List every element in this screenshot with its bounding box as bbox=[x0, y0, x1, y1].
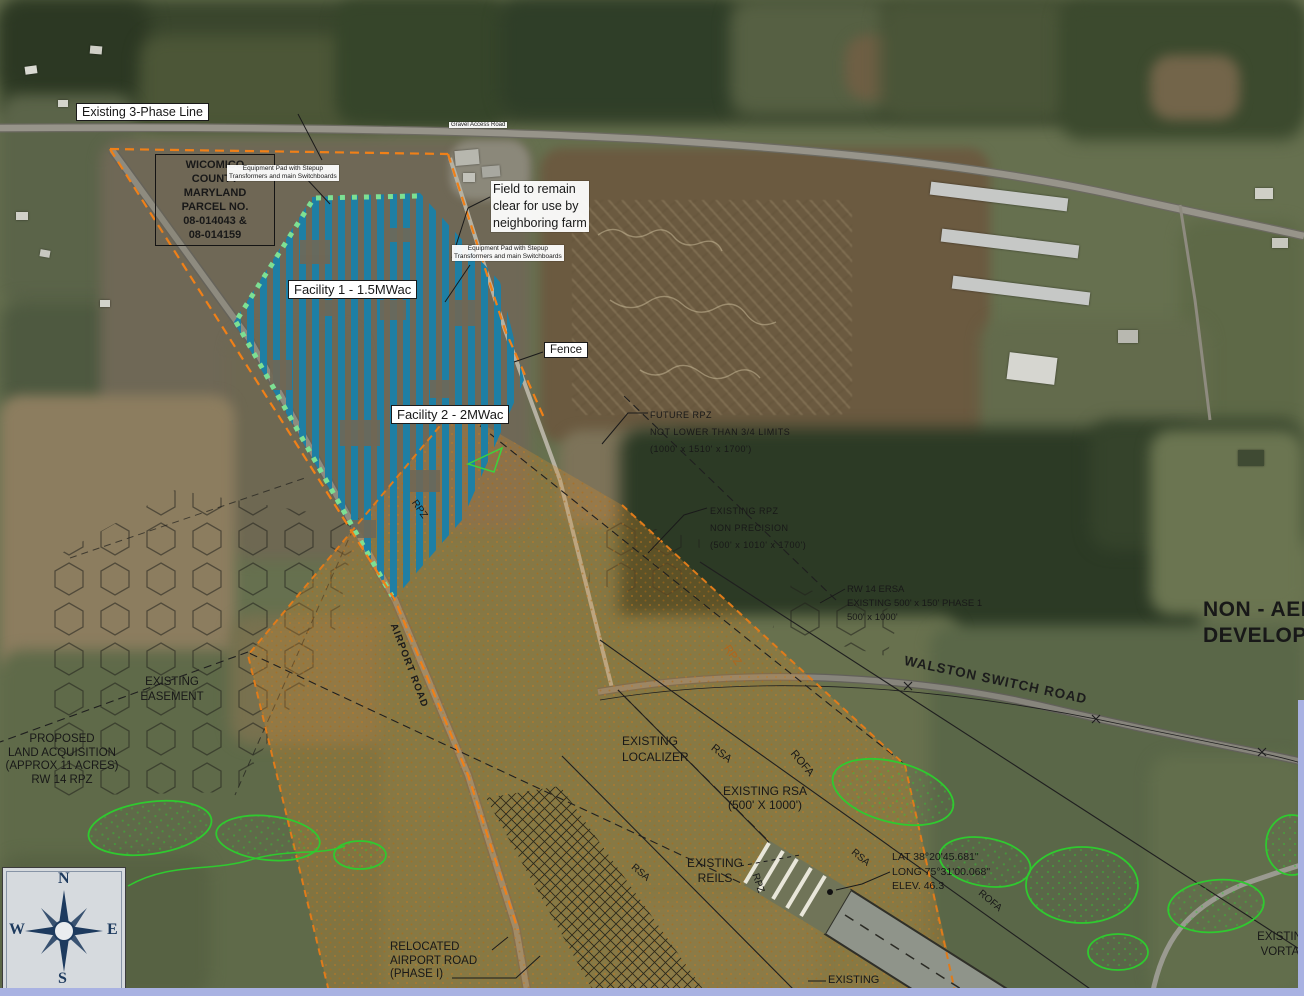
lat-long-elev-label: LAT 38°20'45.681"LONG 75°31'00.068"ELEV.… bbox=[892, 850, 990, 894]
future-rpz-label: FUTURE RPZNOT LOWER THAN 3/4 LIMITS(1000… bbox=[650, 407, 790, 458]
existing-3-phase-line-label: Existing 3-Phase Line bbox=[76, 103, 209, 121]
label-line: EXISTING RSA bbox=[655, 785, 875, 799]
label-line: PROPOSED bbox=[0, 733, 146, 747]
relocated-airport-road-label: RELOCATEDAIRPORT ROAD(PHASE I) bbox=[390, 941, 477, 982]
compass-w: W bbox=[9, 921, 25, 939]
label-line: RELOCATED bbox=[390, 941, 477, 955]
page-edge-right bbox=[1298, 700, 1304, 996]
non-aeronautical-label: NON - AERDEVELOPM bbox=[1203, 597, 1304, 649]
label-line: DEVELOPM bbox=[1203, 623, 1304, 649]
label-line: ELEV. 46.3 bbox=[892, 879, 990, 894]
label-line: Transformers and main Switchboards bbox=[229, 173, 337, 181]
proposed-land-acquisition-label: PROPOSEDLAND ACQUISITION(APPROX 11 ACRES… bbox=[0, 733, 146, 787]
label-line: neighboring farm bbox=[493, 215, 587, 232]
label-line: clear for use by bbox=[493, 198, 587, 215]
label-line: Facility 1 - 1.5MWac bbox=[294, 282, 411, 297]
label-line: Existing 3-Phase Line bbox=[82, 105, 203, 119]
label-line: Gravel Access Road bbox=[451, 122, 505, 128]
label-line: LOCALIZER bbox=[622, 749, 689, 765]
label-line: LONG 75°31'00.068" bbox=[892, 865, 990, 880]
label-line: LAND ACQUISITION bbox=[0, 747, 146, 761]
label-line: NOT LOWER THAN 3/4 LIMITS bbox=[650, 424, 790, 441]
label-line: VORTAC bbox=[1254, 945, 1304, 960]
label-line: MARYLAND bbox=[161, 186, 269, 200]
label-line: EXISTING bbox=[622, 733, 689, 749]
label-line: 500' x 1000' bbox=[847, 611, 982, 625]
label-line: NON PRECISION bbox=[710, 520, 806, 537]
compass-s: S bbox=[58, 970, 67, 988]
existing-rpz-label: EXISTING RPZNON PRECISION(500' x 1010' x… bbox=[710, 503, 806, 554]
rw14-ersa-label: RW 14 ERSAEXISTING 500' x 150' PHASE 150… bbox=[847, 583, 982, 625]
equipment-pad-2-label: Equipment Pad with StepupTransformers an… bbox=[452, 245, 564, 261]
label-line: Fence bbox=[550, 344, 582, 356]
label-line: (PHASE I) bbox=[390, 968, 477, 982]
field-remain-clear-label: Field to remainclear for use byneighbori… bbox=[491, 181, 589, 232]
label-line: 08-014043 & bbox=[161, 214, 269, 228]
page-edge-bottom bbox=[0, 988, 1304, 996]
label-line: 08-014159 bbox=[161, 228, 269, 242]
label-line: (APPROX 11 ACRES) bbox=[0, 760, 146, 774]
label-line: Facility 2 - 2MWac bbox=[397, 407, 503, 422]
label-line: Equipment Pad with Stepup bbox=[229, 165, 337, 173]
label-line: EXISTING bbox=[660, 856, 770, 871]
plan-overlay bbox=[0, 0, 1304, 996]
label-line: EXISTING bbox=[126, 675, 218, 690]
label-line: (500' X 1000') bbox=[655, 799, 875, 813]
label-line: AIRPORT ROAD bbox=[390, 955, 477, 969]
label-line: Equipment Pad with Stepup bbox=[454, 245, 562, 253]
equipment-pad-1-label: Equipment Pad with StepupTransformers an… bbox=[227, 165, 339, 181]
label-line: LAT 38°20'45.681" bbox=[892, 850, 990, 865]
label-line: FUTURE RPZ bbox=[650, 407, 790, 424]
fence-label: Fence bbox=[544, 342, 588, 358]
label-line: NON - AER bbox=[1203, 597, 1304, 623]
compass-n: N bbox=[58, 870, 70, 888]
existing-vortac-label: EXISTINGVORTAC bbox=[1254, 930, 1304, 960]
compass-rose: N E S W bbox=[2, 867, 126, 993]
label-line: EXISTING 500' x 150' PHASE 1 bbox=[847, 597, 982, 611]
label-line: RW 14 RPZ bbox=[0, 774, 146, 788]
site-plan-map: Existing 3-Phase LineGravel Access RoadW… bbox=[0, 0, 1304, 996]
label-line: Transformers and main Switchboards bbox=[454, 253, 562, 261]
label-line: EXISTING RPZ bbox=[710, 503, 806, 520]
label-line: EXISTING bbox=[1254, 930, 1304, 945]
label-line: EASEMENT bbox=[126, 690, 218, 705]
existing-rsa-label: EXISTING RSA(500' X 1000') bbox=[655, 785, 875, 812]
label-line: (500' x 1010' x 1700') bbox=[710, 537, 806, 554]
existing-easement-label: EXISTINGEASEMENT bbox=[126, 675, 218, 705]
label-line: (1000' x 1510' x 1700') bbox=[650, 441, 790, 458]
access-road-label: Gravel Access Road bbox=[449, 122, 507, 128]
corn-maze-lines bbox=[598, 229, 776, 378]
existing-bottom-label: EXISTING bbox=[828, 974, 879, 986]
label-line: EXISTING bbox=[828, 974, 879, 986]
compass-e: E bbox=[107, 921, 118, 939]
label-line: PARCEL NO. bbox=[161, 200, 269, 214]
facility-1-label: Facility 1 - 1.5MWac bbox=[288, 280, 417, 299]
existing-localizer-label: EXISTINGLOCALIZER bbox=[622, 733, 689, 765]
label-line: RW 14 ERSA bbox=[847, 583, 982, 597]
facility-2-label: Facility 2 - 2MWac bbox=[391, 405, 509, 424]
label-line: Field to remain bbox=[493, 181, 587, 198]
